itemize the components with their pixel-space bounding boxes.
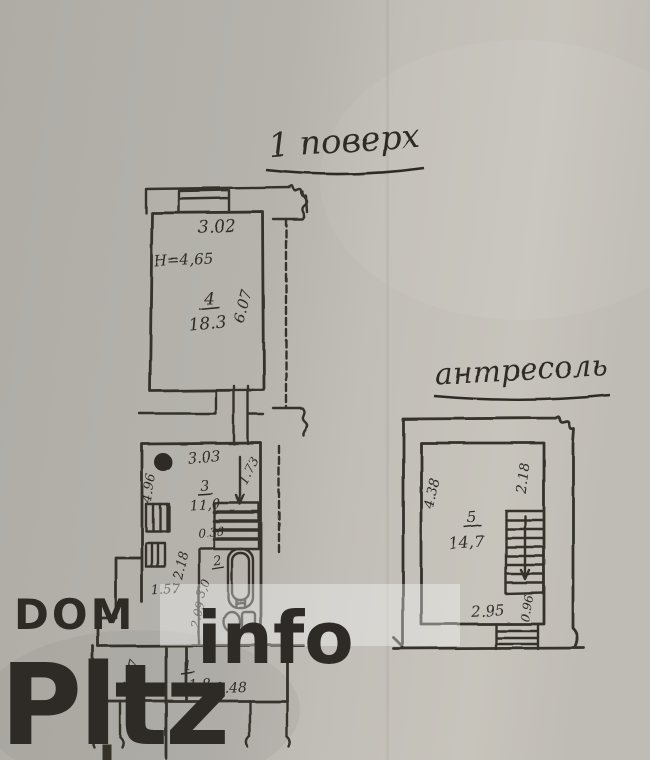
room3-dim-a: 0.38 — [197, 524, 225, 539]
room4-number: 4 — [203, 289, 215, 309]
floor-plan-canvas: 1 поверх 3.02 Н=4,65 4 18.3 6.07 3.03 1.… — [0, 0, 650, 760]
room5-number: 5 — [466, 508, 477, 527]
room4-area: 18.3 — [188, 312, 227, 335]
room5-bottom-dim: 2.95 — [470, 601, 505, 621]
room-number-underline — [197, 493, 212, 494]
room3-number: 3 — [200, 478, 209, 494]
watermark-brand-suffix: info — [197, 596, 354, 680]
room4-top-dim: 3.02 — [198, 216, 237, 237]
room3-area: 11,0 — [189, 496, 221, 514]
scanned-floor-plan: 1 поверх 3.02 Н=4,65 4 18.3 6.07 3.03 1.… — [0, 0, 650, 760]
watermark-brand-top: DOM — [14, 590, 135, 639]
watermark-brand-main: Pltz — [0, 641, 227, 760]
sink-icon — [154, 453, 172, 471]
room3-top-dim: 3.03 — [187, 447, 221, 467]
room5-area: 14,7 — [448, 532, 486, 553]
room4-height-note: Н=4,65 — [153, 249, 214, 270]
